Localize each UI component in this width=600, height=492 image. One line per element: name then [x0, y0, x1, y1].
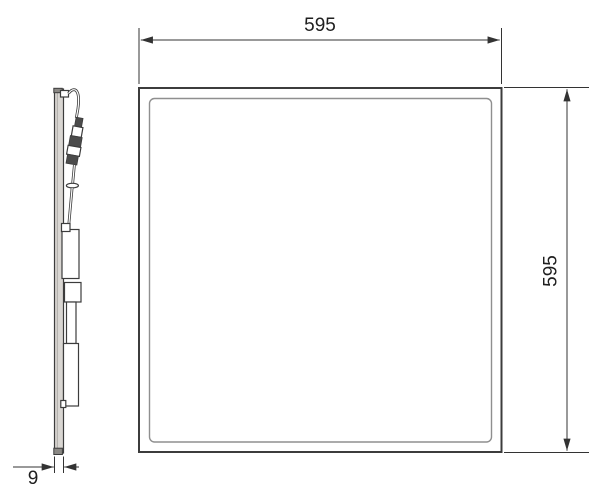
side-view: [54, 88, 86, 454]
panel-dimension-drawing: 595 595 9: [0, 0, 600, 492]
height-dimension-label: 595: [541, 255, 562, 287]
driver-junction-box: [65, 283, 82, 303]
dim-height: 595: [504, 88, 589, 453]
driver-box-upper: [62, 230, 79, 279]
cable-ring: [66, 183, 78, 188]
width-dimension-label: 595: [304, 15, 336, 36]
cable-gland: [61, 91, 69, 98]
driver-box-notch: [61, 401, 66, 408]
terminal-block: [62, 224, 71, 232]
cable-channel: [67, 302, 77, 344]
power-cable-mid: [73, 165, 75, 183]
panel-bottom-cap: [54, 448, 63, 454]
power-cable-lower: [69, 188, 72, 224]
front-view: [139, 88, 502, 452]
panel-diffuser: [150, 99, 492, 443]
driver-box-lower: [64, 344, 79, 407]
power-cable-hook: [69, 90, 79, 118]
thickness-dimension-label: 9: [28, 468, 39, 489]
dim-thickness: 9: [13, 457, 79, 490]
technical-drawing-canvas: 595 595 9: [0, 0, 600, 492]
inline-connector: [65, 117, 86, 166]
dim-width: 595: [139, 15, 502, 84]
